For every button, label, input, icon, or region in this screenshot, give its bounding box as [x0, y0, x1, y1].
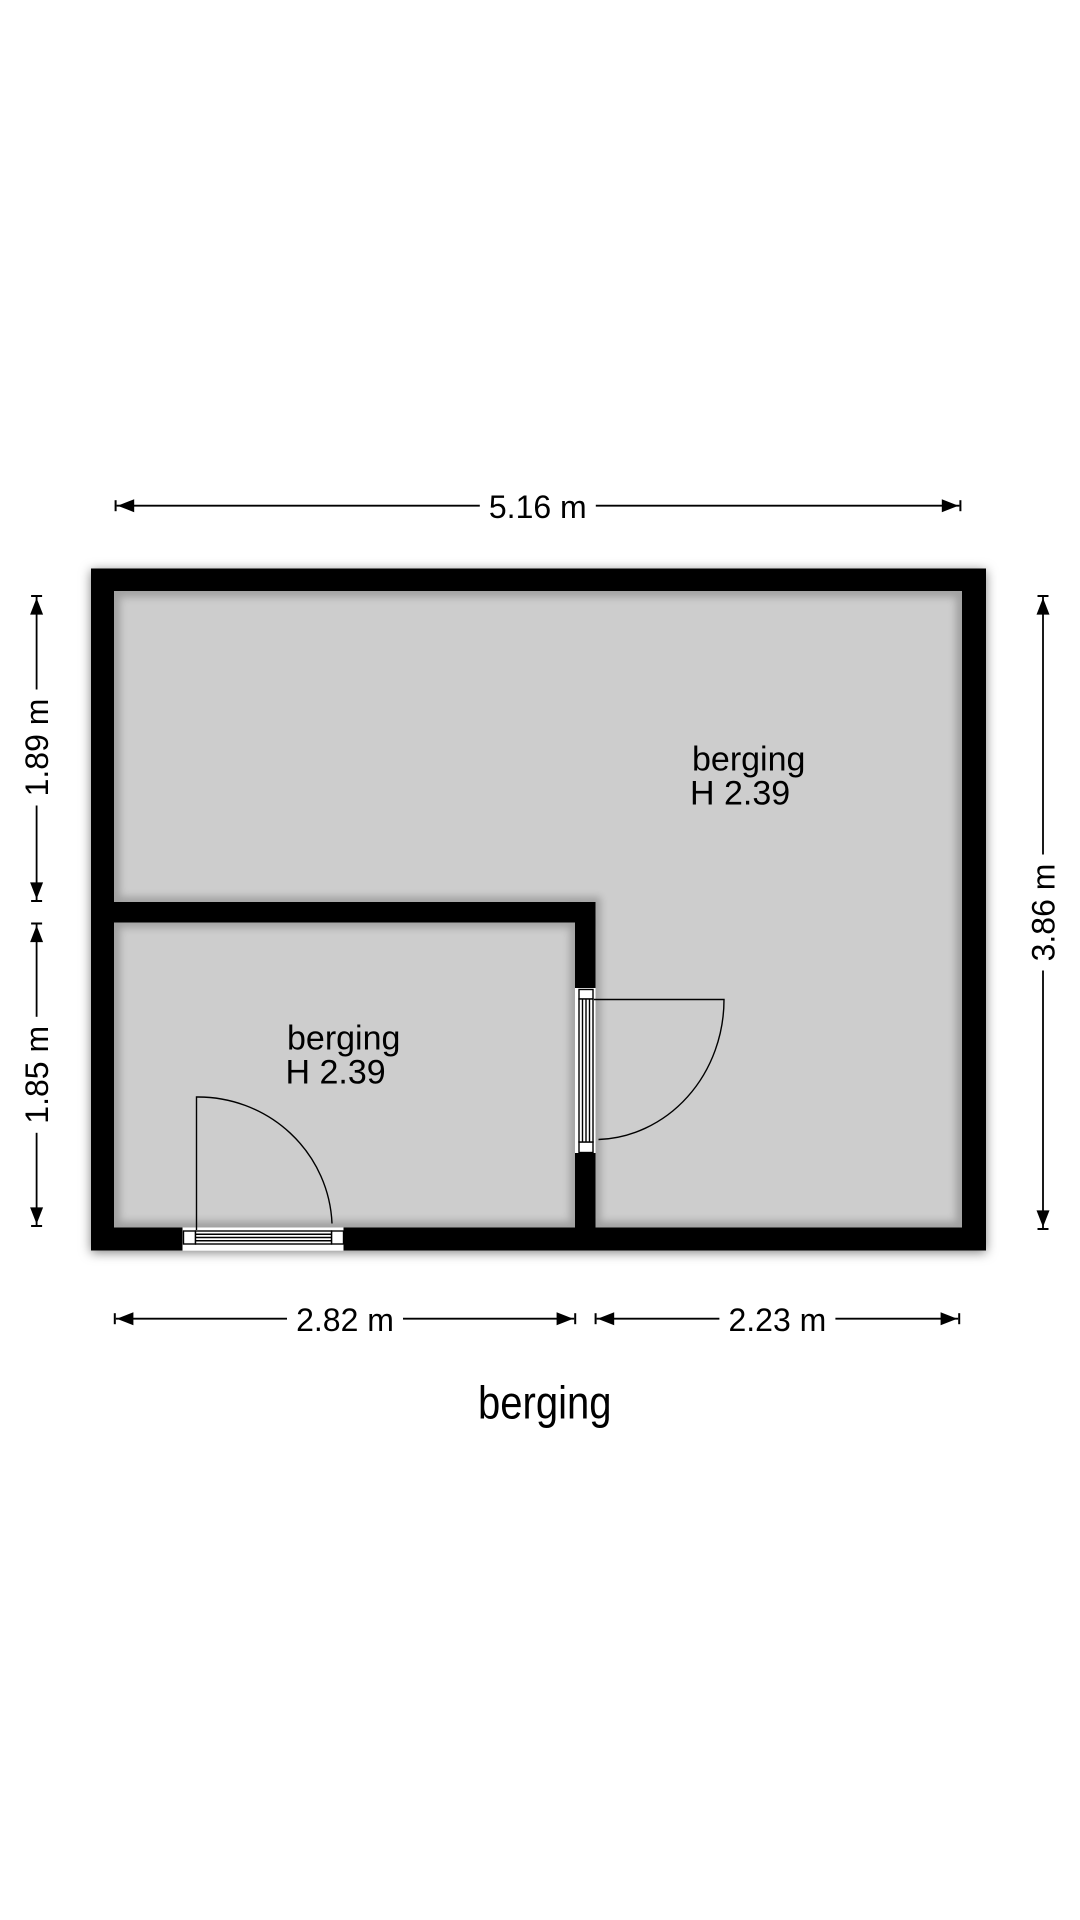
svg-text:berging: berging: [478, 1378, 611, 1429]
svg-text:berging: berging: [287, 1020, 400, 1058]
svg-text:1.85 m: 1.85 m: [19, 1026, 55, 1124]
svg-text:H 2.39: H 2.39: [286, 1054, 386, 1092]
svg-text:1.89 m: 1.89 m: [19, 699, 55, 797]
svg-text:2.82 m: 2.82 m: [296, 1302, 394, 1338]
svg-text:3.86 m: 3.86 m: [1026, 864, 1062, 962]
svg-text:berging: berging: [692, 741, 805, 779]
svg-text:H 2.39: H 2.39: [690, 775, 790, 813]
svg-text:5.16 m: 5.16 m: [489, 489, 587, 525]
svg-text:2.23 m: 2.23 m: [728, 1302, 826, 1338]
